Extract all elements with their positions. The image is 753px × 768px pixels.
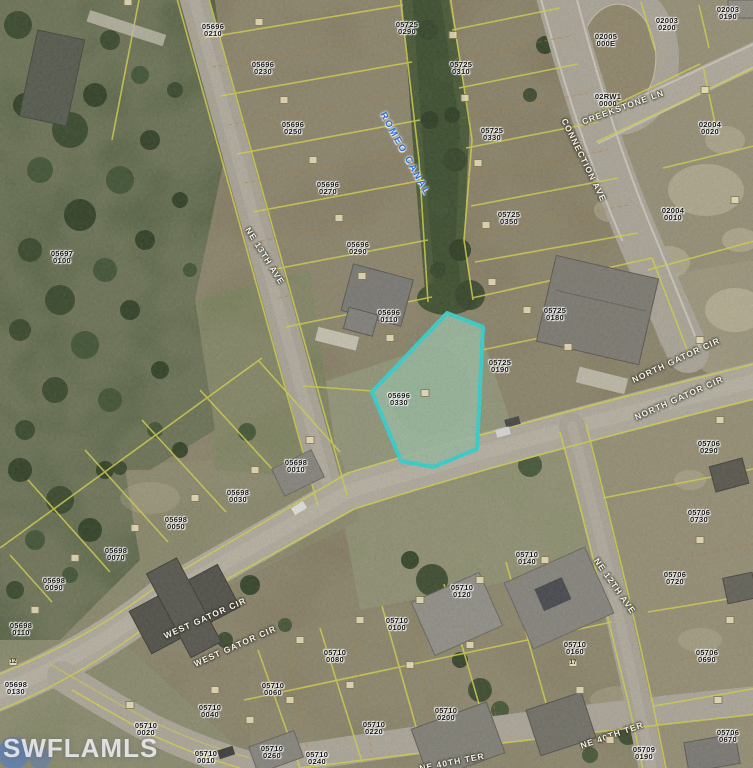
lot-marker bbox=[696, 536, 705, 544]
parcel-label: 057060670 bbox=[717, 729, 739, 743]
parcel-label: 057100200 bbox=[435, 707, 457, 721]
lot-number-marker: 12 bbox=[9, 658, 18, 666]
parcel-label: 056980090 bbox=[43, 577, 65, 591]
lot-marker bbox=[466, 641, 475, 649]
lot-marker bbox=[306, 436, 315, 444]
street-label: WEST GATOR CIR bbox=[162, 595, 248, 640]
lot-marker bbox=[482, 221, 491, 229]
lot-marker bbox=[211, 686, 220, 694]
lot-number-marker: 17 bbox=[569, 659, 578, 667]
lot-marker bbox=[286, 696, 295, 704]
parcel-label: 020030190 bbox=[717, 6, 739, 20]
lot-marker bbox=[251, 466, 260, 474]
parcel-label: 057100220 bbox=[363, 721, 385, 735]
lot-marker bbox=[356, 616, 365, 624]
lot-marker bbox=[523, 306, 532, 314]
lot-marker bbox=[606, 736, 615, 744]
lot-marker bbox=[71, 554, 80, 562]
lot-marker bbox=[474, 159, 483, 167]
parcel-label: 057060720 bbox=[664, 571, 686, 585]
lot-marker bbox=[255, 18, 264, 26]
street-label: NE 40TH TER bbox=[418, 751, 485, 768]
map-labels: 0569602100569602300569602500569602700569… bbox=[0, 0, 753, 768]
parcel-label: 057250350 bbox=[498, 211, 520, 225]
parcel-label: 057250310 bbox=[450, 61, 472, 75]
parcel-label: 020040010 bbox=[662, 207, 684, 221]
lot-marker bbox=[476, 576, 485, 584]
parcel-label: 056980130 bbox=[5, 681, 27, 695]
canal-label: ROMEO CANAL bbox=[377, 110, 432, 197]
street-label: CONNECTION AVE bbox=[559, 117, 608, 204]
lot-marker bbox=[309, 156, 318, 164]
street-label: NE 12TH AVE bbox=[592, 556, 638, 616]
parcel-label: 057100060 bbox=[262, 682, 284, 696]
lot-marker bbox=[731, 196, 740, 204]
parcel-label: 056970100 bbox=[51, 250, 73, 264]
lot-marker bbox=[714, 696, 723, 704]
parcel-label: 056960110 bbox=[378, 309, 400, 323]
watermark: SWFLAMLS bbox=[3, 733, 158, 764]
street-label: NORTH GATOR CIR bbox=[630, 335, 721, 385]
lot-marker bbox=[358, 272, 367, 280]
lot-marker bbox=[406, 661, 415, 669]
street-label: NE 13TH AVE bbox=[243, 225, 286, 286]
parcel-label: 057100080 bbox=[324, 649, 346, 663]
parcel-label: 057100140 bbox=[516, 551, 538, 565]
parcel-label: 056960290 bbox=[347, 241, 369, 255]
parcel-label: 02005000E bbox=[595, 33, 617, 47]
parcel-label: 020040020 bbox=[699, 121, 721, 135]
lot-marker bbox=[346, 681, 355, 689]
lot-marker bbox=[296, 636, 305, 644]
parcel-label: 057100120 bbox=[451, 584, 473, 598]
parcel-label: 056980070 bbox=[105, 547, 127, 561]
parcel-label: 056980050 bbox=[165, 516, 187, 530]
lot-marker bbox=[191, 494, 200, 502]
parcel-label: 056960230 bbox=[252, 61, 274, 75]
lot-marker bbox=[701, 86, 710, 94]
lot-marker bbox=[124, 0, 133, 6]
lot-marker bbox=[126, 701, 135, 709]
lot-marker bbox=[576, 686, 585, 694]
parcel-label: 057090190 bbox=[633, 746, 655, 760]
parcel-label: 057250190 bbox=[489, 359, 511, 373]
lot-marker bbox=[280, 96, 289, 104]
parcel-label: 057060290 bbox=[698, 440, 720, 454]
lot-marker bbox=[335, 214, 344, 222]
street-label: CREEKSTONE LN bbox=[580, 87, 665, 126]
parcel-label: 057100040 bbox=[199, 704, 221, 718]
parcel-label: 057060690 bbox=[696, 649, 718, 663]
aerial-parcel-map[interactable]: 0569602100569602300569602500569602700569… bbox=[0, 0, 753, 768]
parcel-label: 056980110 bbox=[10, 622, 32, 636]
lot-marker bbox=[416, 596, 425, 604]
parcel-label: 056960210 bbox=[202, 23, 224, 37]
parcel-label: 057250290 bbox=[396, 21, 418, 35]
street-label: NORTH GATOR CIR bbox=[633, 374, 725, 422]
parcel-label: 057100160 bbox=[564, 641, 586, 655]
lot-marker bbox=[421, 389, 430, 397]
lot-marker bbox=[696, 336, 705, 344]
lot-marker bbox=[131, 524, 140, 532]
lot-marker bbox=[541, 556, 550, 564]
parcel-label: 056980030 bbox=[227, 489, 249, 503]
parcel-label: 057100010 bbox=[195, 750, 217, 764]
lot-marker bbox=[386, 334, 395, 342]
parcel-label: 056960250 bbox=[282, 121, 304, 135]
lot-marker bbox=[246, 716, 255, 724]
parcel-label: 057060730 bbox=[688, 509, 710, 523]
parcel-label: 057250180 bbox=[544, 307, 566, 321]
lot-marker bbox=[461, 94, 470, 102]
street-label: WEST GATOR CIR bbox=[192, 623, 278, 668]
parcel-label: 056960330 bbox=[388, 392, 410, 406]
parcel-label: 057100260 bbox=[261, 745, 283, 759]
lot-marker bbox=[726, 616, 735, 624]
parcel-label: 056980010 bbox=[285, 459, 307, 473]
lot-marker bbox=[564, 343, 573, 351]
lot-marker bbox=[716, 416, 725, 424]
parcel-label: 056960270 bbox=[317, 181, 339, 195]
parcel-label: 057250330 bbox=[481, 127, 503, 141]
parcel-label: 057100240 bbox=[306, 751, 328, 765]
lot-marker bbox=[488, 278, 497, 286]
lot-marker bbox=[31, 606, 40, 614]
lot-marker bbox=[449, 31, 458, 39]
parcel-label: 057100100 bbox=[386, 617, 408, 631]
parcel-label: 020030200 bbox=[656, 17, 678, 31]
